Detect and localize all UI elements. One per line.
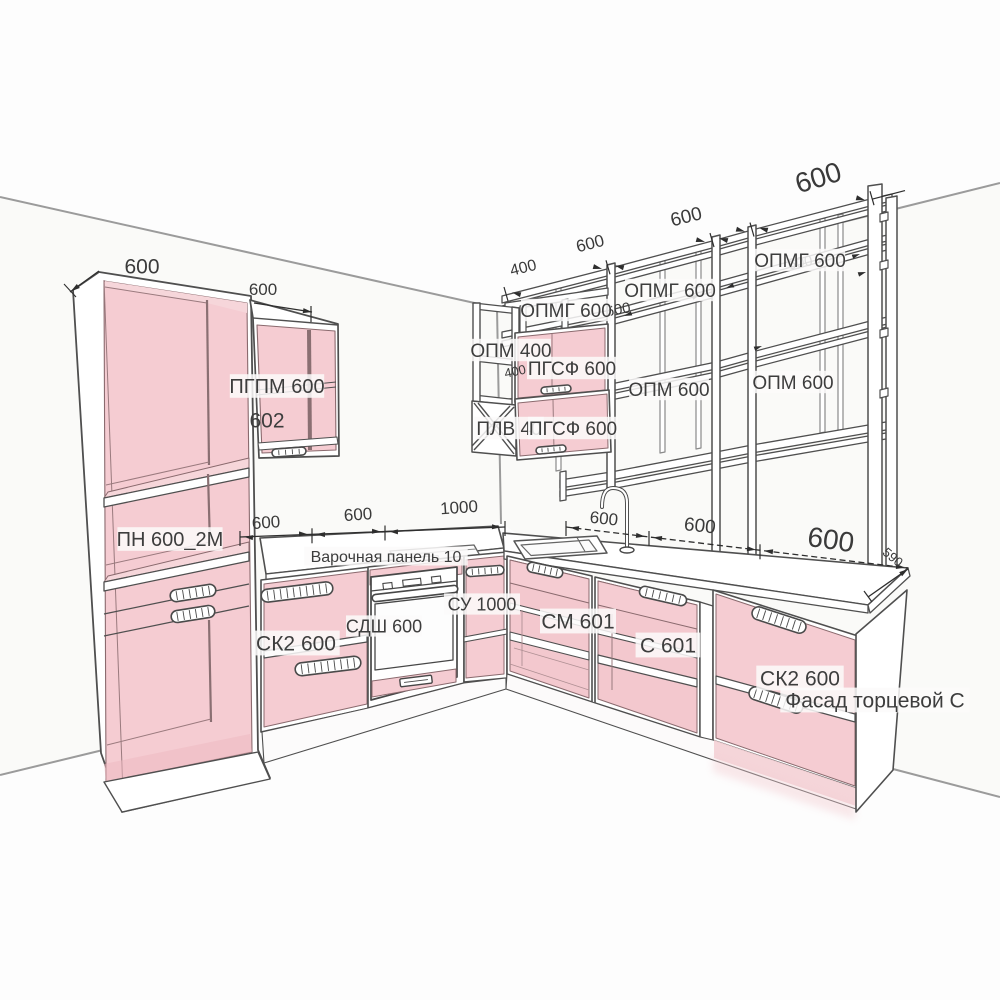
svg-text:600: 600: [589, 508, 619, 530]
svg-text:602: 602: [249, 410, 284, 433]
svg-text:ОПМГ 600: ОПМГ 600: [754, 251, 846, 272]
svg-text:СК2 600: СК2 600: [760, 668, 840, 691]
svg-text:1000: 1000: [440, 497, 479, 519]
svg-text:С 601: С 601: [640, 635, 696, 658]
svg-text:СУ 1000: СУ 1000: [448, 595, 517, 615]
svg-text:600: 600: [806, 521, 857, 558]
svg-text:ПГСФ 600: ПГСФ 600: [528, 359, 616, 380]
svg-text:ОПМГ 600: ОПМГ 600: [520, 301, 612, 322]
svg-text:СМ 601: СМ 601: [541, 611, 614, 634]
svg-text:СДШ 600: СДШ 600: [346, 617, 422, 637]
svg-text:ПН 600_2М: ПН 600_2М: [117, 529, 224, 551]
svg-text:600: 600: [249, 280, 277, 299]
svg-text:ПГПМ 600: ПГПМ 600: [229, 376, 324, 398]
svg-text:Варочная панель 10: Варочная панель 10: [311, 549, 462, 566]
svg-text:Фасад торцевой С: Фасад торцевой С: [785, 690, 964, 713]
svg-text:600: 600: [683, 514, 717, 538]
svg-text:ОПМ 600: ОПМ 600: [628, 380, 709, 401]
svg-text:600: 600: [251, 512, 281, 533]
svg-text:ПГСФ 600: ПГСФ 600: [529, 419, 617, 440]
svg-text:ОПМГ 600: ОПМГ 600: [624, 281, 716, 302]
svg-text:600: 600: [124, 256, 159, 279]
svg-text:600: 600: [343, 504, 373, 525]
svg-text:СК2 600: СК2 600: [256, 633, 336, 656]
svg-text:ОПМ 600: ОПМ 600: [752, 373, 833, 394]
